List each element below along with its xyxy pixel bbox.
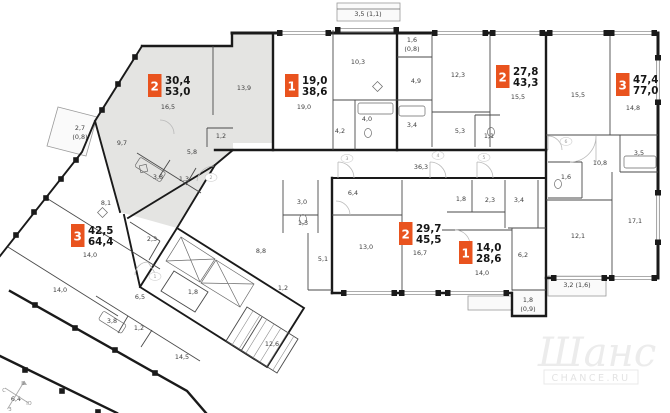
window-jamb xyxy=(540,30,546,36)
badge-rooms-count: 2 xyxy=(499,71,507,85)
kitchen-sink-icon xyxy=(98,208,108,218)
window-jamb xyxy=(59,388,65,394)
room-area-label: 2,3 xyxy=(147,235,157,243)
room-area-label: 3,4 xyxy=(514,196,524,204)
window-jamb xyxy=(609,275,615,281)
window-jamb xyxy=(335,27,341,33)
room-area-label: 3,8 xyxy=(153,173,163,181)
watermark-domain: CHANCE.RU xyxy=(551,373,630,384)
room-area-label: 1,2 xyxy=(134,324,144,332)
badge-rooms-count: 2 xyxy=(402,228,410,242)
room-area-label: 13,9 xyxy=(237,84,251,92)
room-area-label: 15,5 xyxy=(571,91,585,99)
badge-rooms-count: 1 xyxy=(462,247,470,261)
room-area-label: 1,6 xyxy=(407,36,417,44)
window-jamb xyxy=(652,30,658,36)
room-area-label: 10,3 xyxy=(351,58,365,66)
room-area-label: 17,1 xyxy=(628,217,642,225)
room-area-label: 12,1 xyxy=(571,232,585,240)
room-area-label: 36,3 xyxy=(414,163,428,171)
window-jamb xyxy=(132,54,138,60)
watermark-logo: Шанс xyxy=(537,330,656,376)
room-area-label: (0,8) xyxy=(404,45,419,53)
badge-total-area: 64,4 xyxy=(88,236,113,248)
apartment-badge-3room-right[interactable]: 3 47,4 77,0 xyxy=(616,73,658,97)
badge-total-area: 77,0 xyxy=(633,85,658,97)
window-jamb xyxy=(73,157,79,163)
kitchen-sink-icon xyxy=(373,82,383,92)
room-area-label: 3,4 xyxy=(407,121,417,129)
window-jamb xyxy=(655,100,661,106)
window-jamb xyxy=(115,81,121,87)
door-number: 5 xyxy=(483,155,486,161)
room-area-label: 6,2 xyxy=(518,251,528,259)
window-jamb xyxy=(655,55,661,61)
bathtub-icon xyxy=(624,156,656,168)
room-area-label: 12,3 xyxy=(451,71,465,79)
compass-letter: В xyxy=(21,381,25,387)
room-area-label: 1,2 xyxy=(278,284,288,292)
compass-letter: С xyxy=(2,388,6,394)
apartment-badge-3room-left[interactable]: 3 42,5 64,4 xyxy=(71,224,113,248)
window-jamb xyxy=(652,275,658,281)
floor-plan: Шанс CHANCE.RU xyxy=(0,0,670,413)
window-jamb xyxy=(655,190,661,196)
room-area-label: 4,0 xyxy=(362,115,372,123)
apartment-badge-2room-bottom[interactable]: 2 29,7 45,5 xyxy=(399,222,441,246)
room-area-label: 9,7 xyxy=(117,139,127,147)
room-area-label: 10,8 xyxy=(593,159,607,167)
window-jamb xyxy=(490,30,496,36)
window-jamb xyxy=(341,290,347,296)
badge-total-area: 45,5 xyxy=(416,234,441,246)
window-jamb xyxy=(445,290,451,296)
door-number: 2 xyxy=(210,175,213,181)
room-area-label: 2,7 xyxy=(75,124,85,132)
badge-total-area: 28,6 xyxy=(476,253,501,265)
window-jamb xyxy=(504,290,510,296)
window-jamb xyxy=(602,275,608,281)
door-number: 1 xyxy=(154,274,157,280)
window-jamb xyxy=(483,30,489,36)
room-area-label: 6,4 xyxy=(11,395,21,403)
room-area-label: 8,1 xyxy=(101,199,111,207)
room-area-label: 14,0 xyxy=(475,269,489,277)
room-area-label: 1,8 xyxy=(523,296,533,304)
window-jamb xyxy=(95,409,101,413)
room-area-label: 3,8 xyxy=(107,317,117,325)
room-area-label: 2,3 xyxy=(485,196,495,204)
badge-rooms-count: 2 xyxy=(151,80,159,94)
room-area-label: 1,2 xyxy=(216,132,226,140)
staircase xyxy=(226,307,298,373)
room-area-label: 6,5 xyxy=(135,293,145,301)
room-area-label: 1,3 xyxy=(298,219,308,227)
watermark: Шанс CHANCE.RU xyxy=(537,330,656,384)
room-area-label: 3,5 (1,1) xyxy=(354,10,381,18)
window-jamb xyxy=(99,107,105,113)
room-area-label: 3,2 (1,6) xyxy=(563,281,590,289)
room-area-label: 16,5 xyxy=(161,103,175,111)
room-area-label: (0,9) xyxy=(520,305,535,313)
room-area-label: 14,0 xyxy=(53,286,67,294)
room-area-label: 8,8 xyxy=(256,247,266,255)
room-area-label: 14,5 xyxy=(175,353,189,361)
apartment-badge-2room-selected[interactable]: 2 30,4 53,0 xyxy=(148,74,190,98)
door-number: 4 xyxy=(437,153,440,159)
room-area-label: 15,5 xyxy=(511,93,525,101)
room-area-label: 1,6 xyxy=(561,173,571,181)
room-area-label: 1,3 xyxy=(179,175,189,183)
room-area-label: 19,0 xyxy=(297,103,311,111)
room-area-label: 14,8 xyxy=(626,104,640,112)
window-jamb xyxy=(58,176,64,182)
room-area-label: 5,8 xyxy=(187,148,197,156)
room-area-label: 3,5 xyxy=(634,149,644,157)
window-jamb xyxy=(655,240,661,246)
window-jamb xyxy=(326,30,332,36)
window-jamb xyxy=(392,290,398,296)
window-jamb xyxy=(547,30,553,36)
window-jamb xyxy=(609,30,615,36)
window-jamb xyxy=(112,347,118,353)
window-jamb xyxy=(394,27,400,33)
room-area-label: 16,7 xyxy=(413,249,427,257)
room-area-label: 4,2 xyxy=(335,127,345,135)
window-jamb xyxy=(32,302,38,308)
room-area-label: 3,0 xyxy=(297,198,307,206)
balcony-bottom xyxy=(468,296,512,310)
window-jamb xyxy=(432,30,438,36)
window-jamb xyxy=(13,232,19,238)
room-area-label: (0,8) xyxy=(72,133,87,141)
room-area-label: 13,0 xyxy=(359,243,373,251)
compass-letter: З xyxy=(8,407,11,413)
compass-letter: Ю xyxy=(26,401,32,407)
room-area-label: 1,8 xyxy=(456,195,466,203)
bathtub-icon xyxy=(358,103,393,114)
bathtub-icon xyxy=(399,106,425,116)
window-jamb xyxy=(43,195,49,201)
window-jamb xyxy=(22,367,28,373)
badge-rooms-count: 3 xyxy=(74,230,82,244)
room-area-label: 1,8 xyxy=(188,288,198,296)
room-area-label: 5,1 xyxy=(318,255,328,263)
door-number: 3 xyxy=(346,156,349,162)
floor-plan-screenshot: Шанс CHANCE.RU xyxy=(0,0,670,413)
window-jamb xyxy=(72,325,78,331)
door-number: 6 xyxy=(565,139,568,145)
badge-rooms-count: 1 xyxy=(288,80,296,94)
selected-apartment-area[interactable] xyxy=(95,33,273,228)
badge-rooms-count: 3 xyxy=(619,79,627,93)
apartment-badge-1room-bottom[interactable]: 1 14,0 28,6 xyxy=(459,241,501,265)
apartment-badge-2room-top[interactable]: 2 27,8 43,3 xyxy=(496,65,538,89)
window-jamb xyxy=(277,30,283,36)
room-area-label: 4,9 xyxy=(411,77,421,85)
badge-total-area: 43,3 xyxy=(513,77,538,89)
window-jamb xyxy=(31,209,37,215)
window-jamb xyxy=(436,290,442,296)
window-jamb xyxy=(399,290,405,296)
room-area-label: 1,1 xyxy=(484,132,494,140)
apartment-badge-1room-top[interactable]: 1 19,0 38,6 xyxy=(285,74,327,98)
window-jamb xyxy=(604,30,610,36)
window-jamb xyxy=(551,275,557,281)
room-area-label: 6,4 xyxy=(348,189,358,197)
room-area-label: 5,3 xyxy=(455,127,465,135)
badge-total-area: 53,0 xyxy=(165,86,190,98)
window-jamb xyxy=(152,370,158,376)
room-area-label: 14,0 xyxy=(83,251,97,259)
toilet-icon xyxy=(365,129,372,138)
balcony-gray-unit xyxy=(47,107,97,156)
badge-total-area: 38,6 xyxy=(302,86,327,98)
room-area-label: 12,6 xyxy=(265,340,279,348)
